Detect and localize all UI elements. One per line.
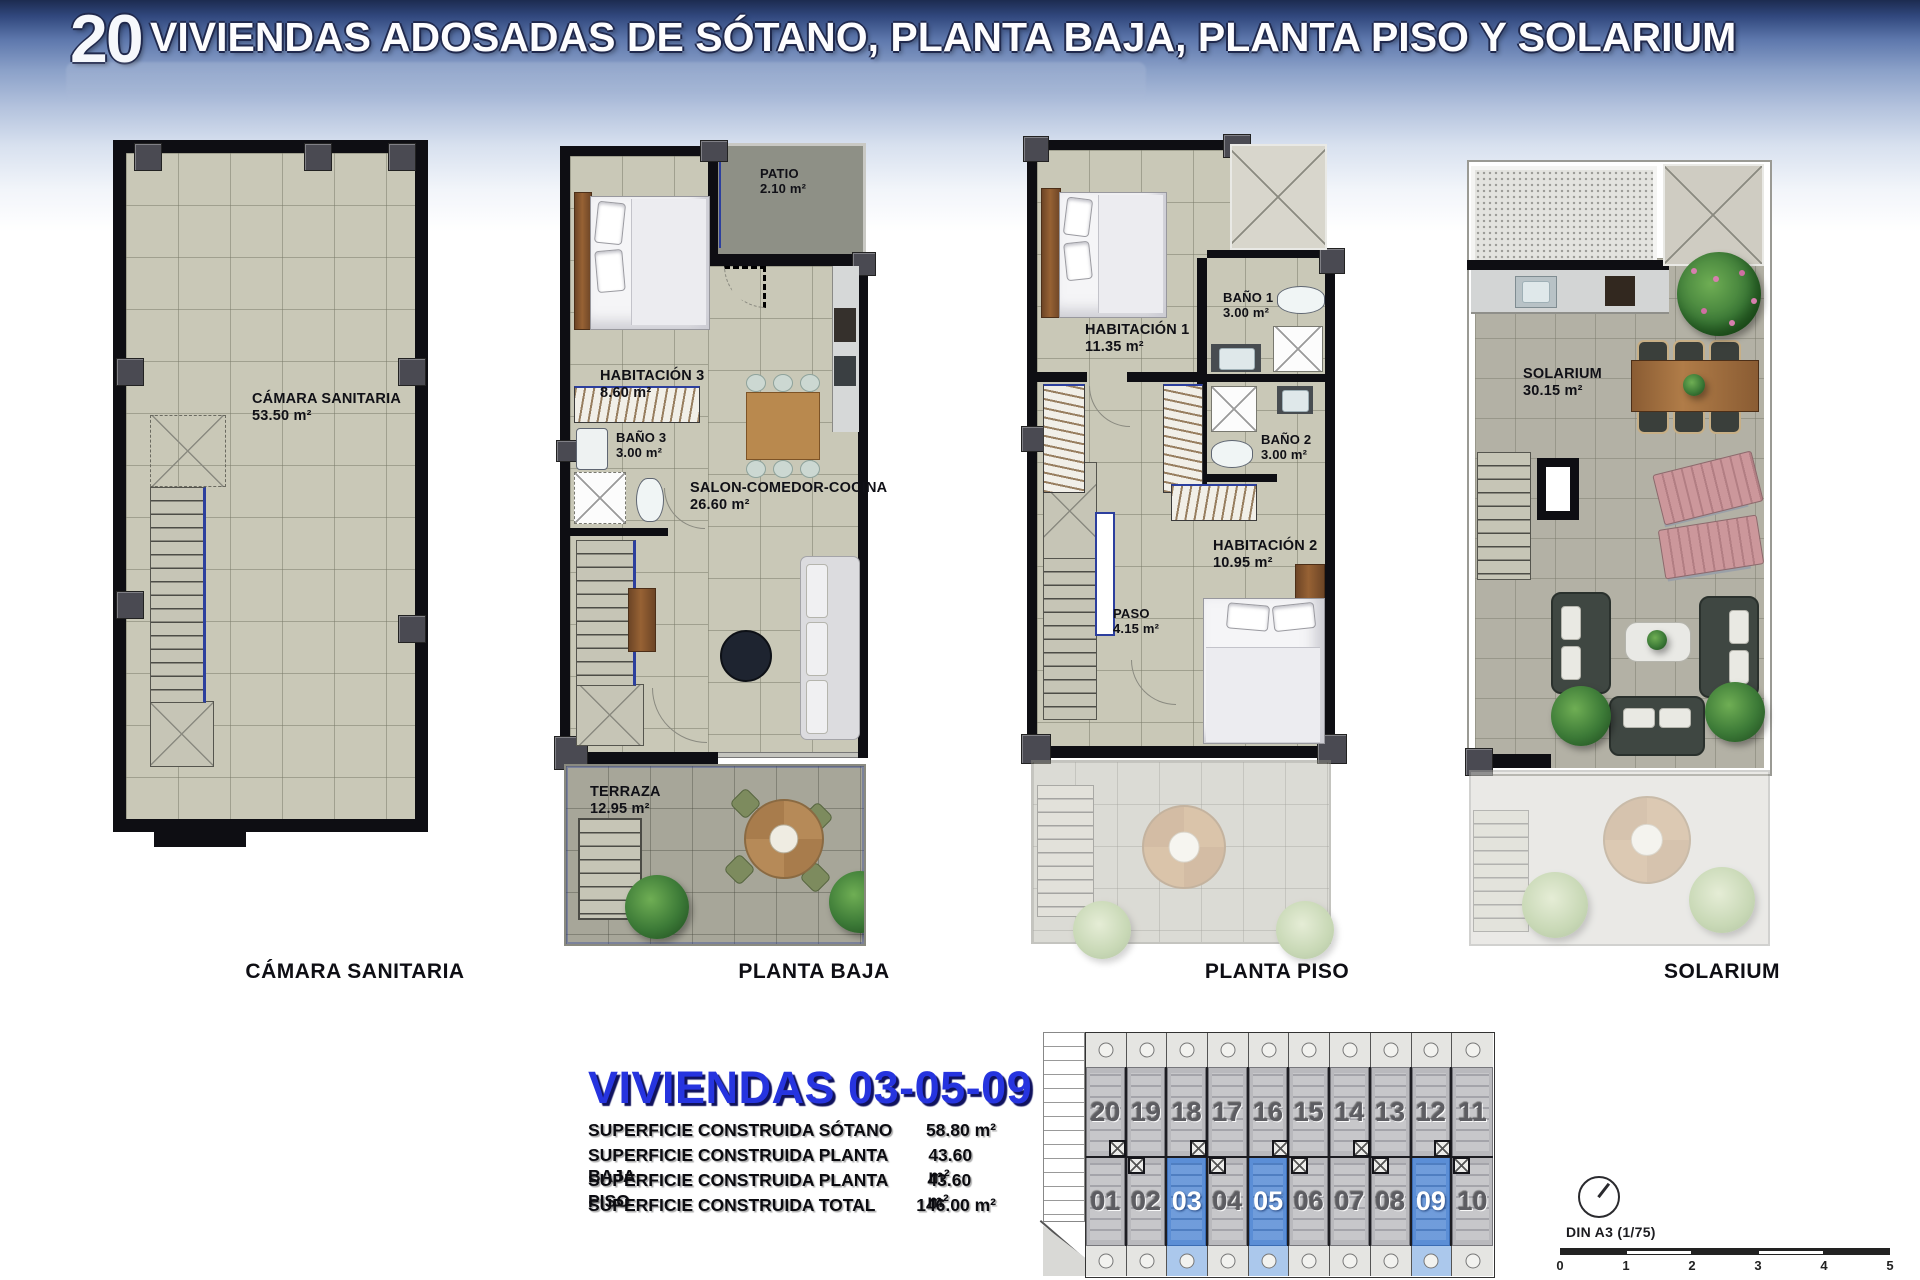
sofa-cushion [806,680,828,734]
wall-top [560,146,718,156]
bidet [1277,286,1325,314]
sofa-cushion [1561,606,1581,640]
wall-bano-divider [1207,374,1335,382]
unit-number: 01 [1090,1186,1120,1217]
sink-basin [1522,281,1550,303]
patio-xbox [1291,1157,1308,1174]
unit-number: 20 [1090,1097,1120,1128]
patio-xbox [1190,1140,1207,1157]
unit-number: 14 [1334,1097,1364,1128]
room-area: 10.95 m² [1213,555,1317,572]
room-label-terraza: TERRAZA 12.95 m² [590,784,661,817]
scale-bar [1560,1248,1890,1256]
vanity-counter [1277,386,1313,414]
bed-headboard [1041,188,1061,318]
unit-number: 11 [1458,1097,1487,1128]
room-area: 3.00 m² [1223,305,1273,320]
wall-hab1-bottom2 [1127,372,1207,382]
unit-number: 12 [1416,1097,1446,1128]
room-name: CÁMARA SANITARIA [252,391,401,408]
scale-tick-3: 3 [1754,1258,1761,1273]
dining-chair [773,460,793,478]
vanity-counter [1211,344,1261,372]
grass-plant [1073,901,1131,959]
summary-value: 58.80 m² [926,1120,996,1145]
room-area: 2.10 m² [760,181,806,196]
room-label-habitacion2: HABITACIÓN 2 10.95 m² [1213,538,1317,571]
room-area: 12.95 m² [590,801,661,818]
room-label-bano1: BAÑO 1 3.00 m² [1223,290,1273,320]
washbasin [1282,390,1309,412]
pillow [1063,241,1093,282]
washbasin [1219,348,1255,370]
wall-bottom [1027,746,1335,758]
terrace-round-table [1142,805,1226,889]
dining-chair [800,374,820,392]
tree [1677,252,1761,336]
bed-duvet [631,199,706,325]
summary-row: SUPERFICIE CONSTRUIDA PLANTA BAJA 43.60 … [588,1145,996,1170]
scale-tick-1: 1 [1622,1258,1629,1273]
terrace-round-table [744,799,824,879]
summary-value: 146.00 m² [916,1195,996,1220]
terrace-round-table [1603,796,1691,884]
sofa-cushion [806,564,828,618]
gravel-area [1471,166,1657,270]
terrace-stairs [1473,810,1529,932]
room-name: BAÑO 2 [1261,432,1311,447]
wall-bano-bottom [570,528,668,536]
stairs [576,540,636,686]
stairs-landing-dashed [150,415,226,487]
patio-xbox [1109,1140,1126,1157]
room-area: 53.50 m² [252,408,401,425]
coffee-table [720,630,772,682]
tree-flowers [1691,268,1697,274]
dining-chair [773,374,793,392]
shower [1211,386,1257,432]
street-strip [1043,1032,1085,1222]
unit-number: 03 [1172,1186,1202,1217]
north-indicator [1578,1176,1620,1218]
floorplan-solarium: SOLARIUM 30.15 m² [1467,140,1772,946]
dining-chair [800,460,820,478]
wardrobe [1163,384,1203,493]
room-label-salon: SALON-COMEDOR-COCINA 26.60 m² [690,480,887,513]
site-key-plan: 20191817161514131211 0102030405060708091… [1043,1032,1495,1278]
table-center [1169,832,1200,863]
patio-xbox [1372,1157,1389,1174]
summary-label: SUPERFICIE CONSTRUIDA PLANTA PISO [588,1170,927,1195]
unit-number: 13 [1375,1097,1405,1128]
wall-band [1467,260,1669,270]
room-label-patio: PATIO 2.10 m² [760,166,806,196]
room-area: 3.00 m² [1261,447,1311,462]
room-label-bano2: BAÑO 2 3.00 m² [1261,432,1311,462]
unit-number: 17 [1212,1097,1242,1128]
room-label-paso: PASO 4.15 m² [1113,606,1159,636]
summary-row: SUPERFICIE CONSTRUIDA SÓTANO 58.80 m² [588,1120,996,1145]
column [116,591,144,619]
plant [1705,682,1765,742]
grass-plant [1689,867,1755,933]
summary-table: SUPERFICIE CONSTRUIDA SÓTANO 58.80 m² SU… [588,1120,996,1220]
unit-number: 16 [1253,1097,1283,1128]
room-label-bano3: BAÑO 3 3.00 m² [616,430,666,460]
stairs [1043,558,1097,720]
room-label-solarium: SOLARIUM 30.15 m² [1523,366,1602,399]
grass-plant [1276,901,1334,959]
scale-tick-2: 2 [1688,1258,1695,1273]
wall-patio-bottom [708,254,866,266]
sofa-cushion [1659,708,1691,728]
kitchen-sink [1515,276,1557,308]
room-name: HABITACIÓN 2 [1213,538,1317,555]
wall-bano2-bottom [1207,474,1277,482]
stair-landing [1095,512,1115,636]
summary-row: SUPERFICIE CONSTRUIDA PLANTA PISO 43.60 … [588,1170,996,1195]
room-name: TERRAZA [590,784,661,801]
bed-duvet [1206,647,1320,742]
toilet [1211,440,1253,468]
sliding-door [718,752,858,758]
dining-chair [746,374,766,392]
shower [1273,326,1323,372]
column [700,140,728,162]
stairs-lower-diagonal [150,701,214,767]
room-area: 11.35 m² [1085,339,1189,356]
table-plant [1683,374,1705,396]
summary-label: SUPERFICIE CONSTRUIDA SÓTANO [588,1120,892,1145]
wall-top [1027,140,1237,150]
column [398,358,426,386]
unit-number: 08 [1375,1186,1405,1217]
floorplan-planta-baja: PATIO 2.10 m² HABITACIÓN 3 8.60 m² BAÑO [560,140,870,946]
column [398,615,426,643]
unit-number: 06 [1294,1186,1324,1217]
roof-void [1230,144,1327,250]
unit-number: 19 [1131,1097,1161,1128]
hob [1605,276,1635,306]
plant [829,871,866,933]
stairs [1477,452,1531,580]
terrace-faded [1031,760,1331,944]
dining-table [746,392,820,460]
kitchenette-counter [1471,270,1669,314]
unit-number: 15 [1294,1097,1324,1128]
floor-caption-planta-piso: PLANTA PISO [1157,960,1397,984]
unit-number: 18 [1172,1097,1202,1128]
coffee-table-plant [1647,630,1667,650]
sofa-cushion [1729,610,1749,644]
room-label-habitacion3: HABITACIÓN 3 8.60 m² [600,368,704,401]
scale-tick-0: 0 [1556,1258,1563,1273]
roof-void [1663,164,1764,266]
room-label-habitacion1: HABITACIÓN 1 11.35 m² [1085,322,1189,355]
patio-floor [718,146,863,254]
pillow [594,201,626,246]
scale-segment [1758,1250,1824,1255]
unit-number: 07 [1334,1186,1364,1217]
unit-number: 04 [1212,1186,1242,1217]
sofa-cushion [806,622,828,676]
scale-segment [1824,1250,1890,1255]
floorplan-planta-piso: HABITACIÓN 1 11.35 m² BAÑO 1 3.00 m² BAÑ… [1027,140,1335,946]
bottom-step-wall [154,829,246,847]
summary-value: 43.60 m² [928,1145,996,1170]
scale-segment [1560,1250,1626,1255]
pillow [1272,602,1316,632]
column [556,440,578,462]
header-ghost-watermark [66,62,1146,116]
wall-right [1325,250,1335,758]
pillow [594,249,626,293]
patio-window-line [719,152,721,248]
toilet [636,478,664,522]
stairs [150,487,206,703]
summary-row: SUPERFICIE CONSTRUIDA TOTAL 146.00 m² [588,1195,996,1220]
column [388,143,416,171]
bed-duvet [1098,195,1163,313]
sofa-cushion [1623,708,1655,728]
column [1023,136,1049,162]
floor-caption-planta-baja: PLANTA BAJA [694,960,934,984]
wardrobe [1171,484,1257,521]
room-name: HABITACIÓN 3 [600,368,704,385]
column [134,143,162,171]
pillow [1226,602,1270,632]
shower [574,472,626,524]
summary-value: 43.60 m² [927,1170,996,1195]
stair-opening [1537,458,1579,520]
summary-label: SUPERFICIE CONSTRUIDA PLANTA BAJA [588,1145,928,1170]
stairs-winder [576,684,644,746]
sofa [1551,592,1611,694]
tv-sideboard [628,588,656,652]
stove [834,356,856,386]
patio-xbox [1453,1157,1470,1174]
terrace-faded [1469,770,1770,946]
units-block: 20191817161514131211 0102030405060708091… [1085,1032,1495,1278]
wall-hab1-bottom [1037,372,1087,382]
unit-number: 10 [1458,1186,1488,1217]
room-area: 26.60 m² [690,497,887,514]
sofa [1609,696,1705,756]
page-title: VIVIENDAS ADOSADAS DE SÓTANO, PLANTA BAJ… [150,14,1736,61]
patio-parapet [863,143,866,255]
washbasin [576,428,608,470]
room-name: SALON-COMEDOR-COCINA [690,480,887,497]
unit-number: 05 [1253,1186,1283,1217]
unit-number: 09 [1416,1186,1446,1217]
brochure-page: 20 VIVIENDAS ADOSADAS DE SÓTANO, PLANTA … [0,0,1920,1280]
sofa-cushion [1729,650,1749,684]
patio-xbox [1209,1157,1226,1174]
unit-number: 02 [1131,1186,1161,1217]
room-area: 4.15 m² [1113,621,1159,636]
floor-caption-solarium: SOLARIUM [1602,960,1842,984]
xbox-layer [1086,1033,1493,1279]
room-area: 8.60 m² [600,385,704,402]
pillow [1063,197,1093,238]
grass-plant [1522,872,1588,938]
column [116,358,144,386]
floorplan-camara-sanitaria: CÁMARA SANITARIA 53.50 m² [113,140,428,832]
sheet-scale-label: DIN A3 (1/75) [1566,1224,1656,1240]
column [1319,248,1345,274]
wardrobe [1043,384,1085,493]
floor-caption-camara: CÁMARA SANITARIA [235,960,475,984]
room-name: HABITACIÓN 1 [1085,322,1189,339]
summary-title: VIVIENDAS 03-05-09 [588,1062,1032,1114]
scale-segment [1626,1250,1692,1255]
room-name: SOLARIUM [1523,366,1602,383]
sofa-cushion [1561,646,1581,680]
terrace-stairs [1037,785,1094,917]
summary-label: SUPERFICIE CONSTRUIDA TOTAL [588,1195,875,1220]
table-center [769,824,798,853]
north-needle-icon [1597,1183,1609,1198]
kitchen-counter [832,266,859,432]
column [304,143,332,171]
room-name: BAÑO 3 [616,430,666,445]
room-name: BAÑO 1 [1223,290,1273,305]
scale-segment [1692,1250,1758,1255]
patio-xbox [1128,1157,1145,1174]
room-name: PASO [1113,606,1159,621]
plant [1551,686,1611,746]
dining-chair [746,460,766,478]
fridge [834,308,856,342]
scale-tick-4: 4 [1820,1258,1827,1273]
room-label-camara: CÁMARA SANITARIA 53.50 m² [252,391,401,424]
scale-tick-5: 5 [1886,1258,1893,1273]
room-area: 3.00 m² [616,445,666,460]
patio-xbox [1353,1140,1370,1157]
table-center [1631,824,1663,856]
plant [625,875,689,939]
scale-ticks: 012345 [1560,1258,1900,1274]
patio-xbox [1272,1140,1289,1157]
room-area: 30.15 m² [1523,383,1602,400]
wall-void-bottom [1207,250,1335,258]
room-name: PATIO [760,166,806,181]
terrace: TERRAZA 12.95 m² [564,764,866,946]
patio-xbox [1434,1140,1451,1157]
